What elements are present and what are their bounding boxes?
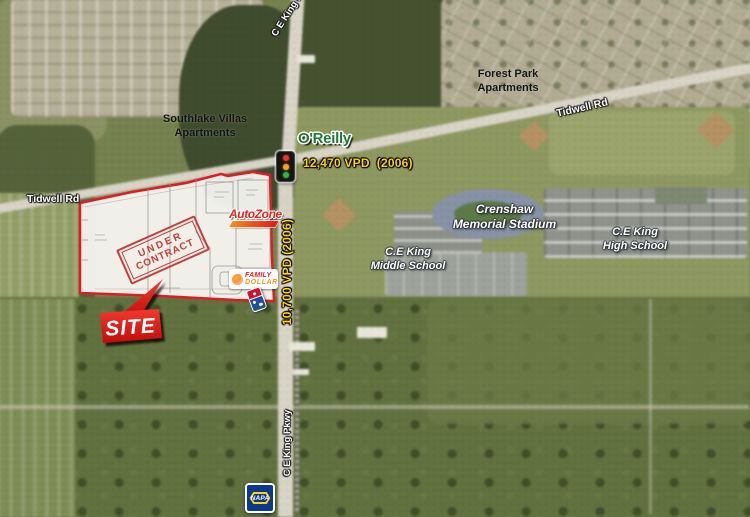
napa-wordmark: NAPA — [247, 495, 273, 502]
label-line: High School — [580, 240, 690, 254]
autozone-swoosh-icon — [229, 221, 278, 227]
family-dollar-sun-icon — [232, 274, 243, 285]
traffic-light-green — [283, 172, 289, 178]
label-line: Southlake Villas — [140, 113, 270, 127]
napa-logo: NAPA — [245, 483, 275, 513]
family-dollar-line2: DOLLAR — [245, 279, 278, 286]
dominos-dot — [252, 300, 256, 304]
autozone-logo: AutoZone — [229, 207, 285, 227]
traffic-count-ce-king: 10,700 VPD (2006) — [280, 212, 294, 332]
label-line: Memorial Stadium — [437, 217, 572, 232]
label-line: Apartments — [140, 127, 270, 141]
family-dollar-wordmark: FAMILY DOLLAR — [245, 272, 278, 286]
autozone-wordmark: AutoZone — [229, 207, 285, 221]
label-crenshaw-stadium: Crenshaw Memorial Stadium — [437, 202, 572, 232]
site-callout-label: SITE — [104, 314, 156, 340]
label-line: Middle School — [352, 260, 464, 274]
family-dollar-logo: FAMILY DOLLAR — [229, 269, 278, 289]
label-middle-school: C.E King Middle School — [352, 246, 464, 274]
traffic-light-yellow — [283, 164, 289, 170]
label-forest-park: Forest Park Apartments — [448, 68, 568, 96]
road-label-ce-king-south: C E King Pkwy — [282, 404, 294, 482]
label-line: Apartments — [448, 82, 568, 96]
label-high-school: C.E King High School — [580, 226, 690, 254]
label-line: C.E King — [352, 246, 464, 260]
dominos-dot — [252, 291, 256, 295]
label-line: Crenshaw — [437, 202, 572, 217]
road-label-tidwell-west: Tidwell Rd — [27, 193, 79, 205]
label-southlake-villas: Southlake Villas Apartments — [140, 113, 270, 141]
traffic-light-red — [283, 155, 289, 161]
traffic-count-tidwell: 12,470 VPD (2006) — [303, 156, 413, 170]
dominos-dot — [258, 302, 262, 306]
aerial-map: SITE UNDER CONTRACT Southlake Villas Apa… — [0, 0, 750, 517]
label-line: C.E King — [580, 226, 690, 240]
label-line: Forest Park — [448, 68, 568, 82]
traffic-light-icon — [276, 151, 295, 182]
family-dollar-line1: FAMILY — [245, 272, 278, 279]
oreilly-logo: O'Reilly — [298, 130, 351, 147]
